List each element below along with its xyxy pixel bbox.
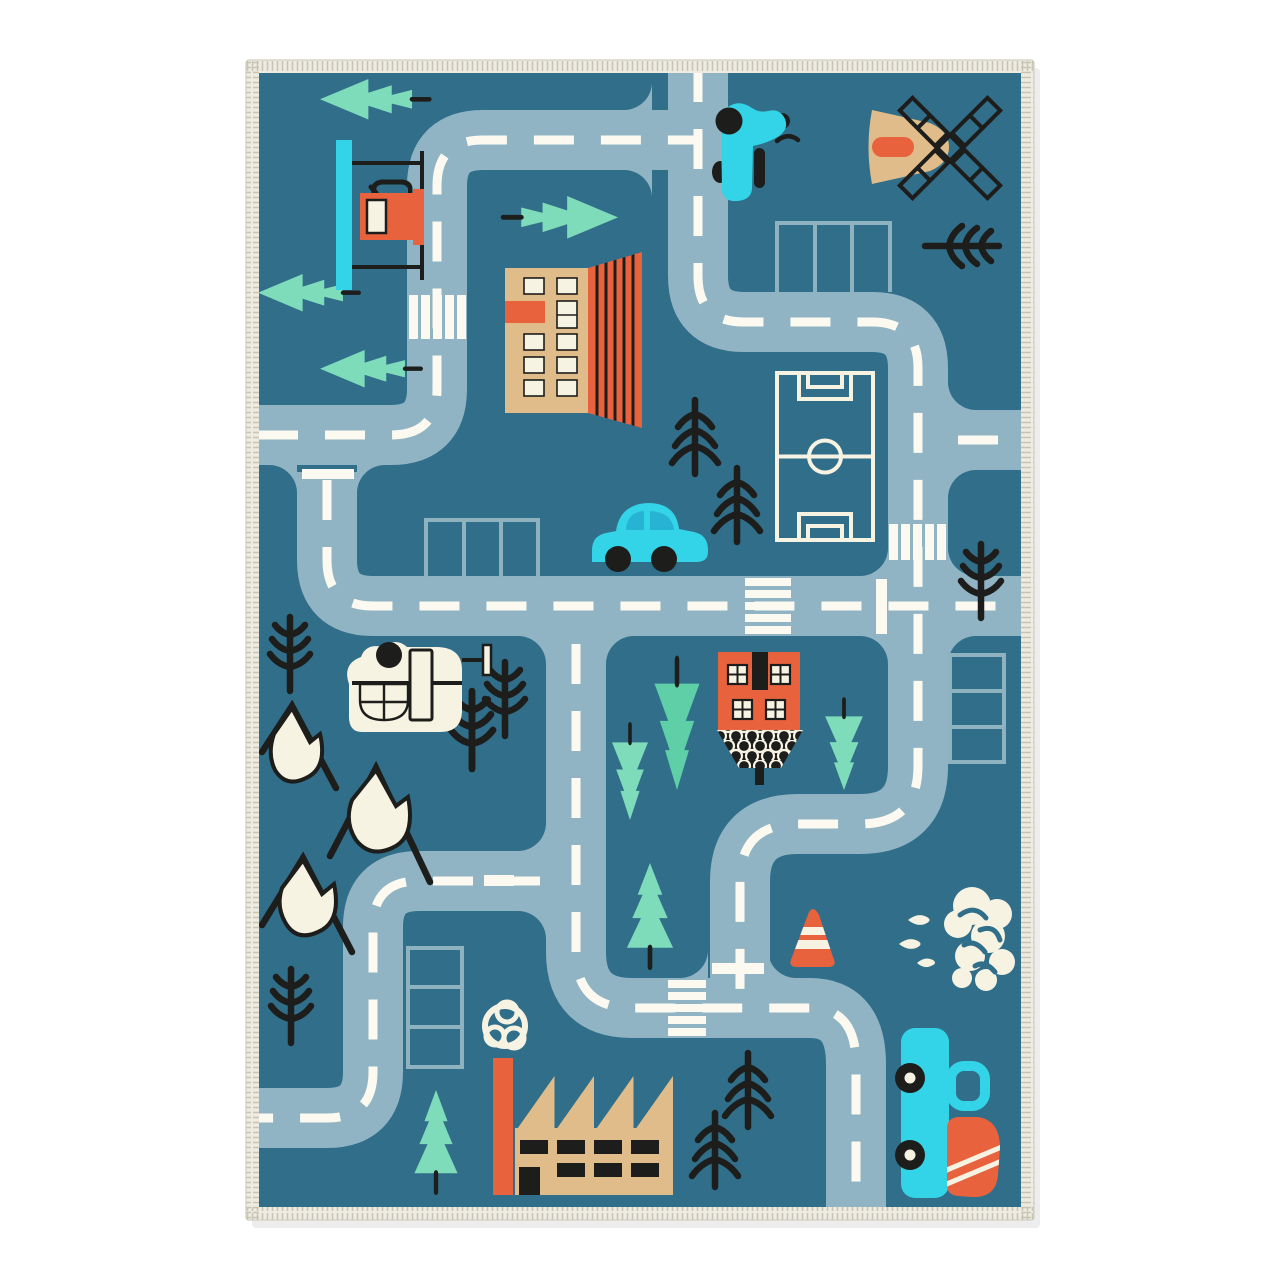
- gas-station: [336, 140, 424, 290]
- helicopter-body: [347, 642, 462, 732]
- gas-station-canopy-bar: [336, 140, 352, 290]
- factory-chimney: [493, 1058, 513, 1195]
- windmill-door: [872, 137, 914, 157]
- house-door: [752, 652, 768, 690]
- apartment-building: [505, 250, 642, 430]
- play-rug-illustration: [0, 0, 1280, 1280]
- car-wheel: [651, 546, 677, 572]
- pump-display: [367, 200, 386, 233]
- crosswalk: [409, 295, 466, 339]
- fuel-pump-side: [413, 189, 424, 245]
- building-accent-band: [505, 301, 545, 323]
- truck-body: [901, 1028, 949, 1198]
- rider-helmet: [716, 108, 743, 135]
- tail-rotor: [483, 645, 491, 675]
- product-photo: [0, 0, 1280, 1280]
- car-wheel: [605, 546, 631, 572]
- crosswalk: [889, 524, 946, 560]
- scooter-seat: [754, 148, 765, 188]
- rotor-blade: [410, 650, 432, 720]
- rotor-hub: [376, 642, 402, 668]
- factory-door: [519, 1167, 540, 1195]
